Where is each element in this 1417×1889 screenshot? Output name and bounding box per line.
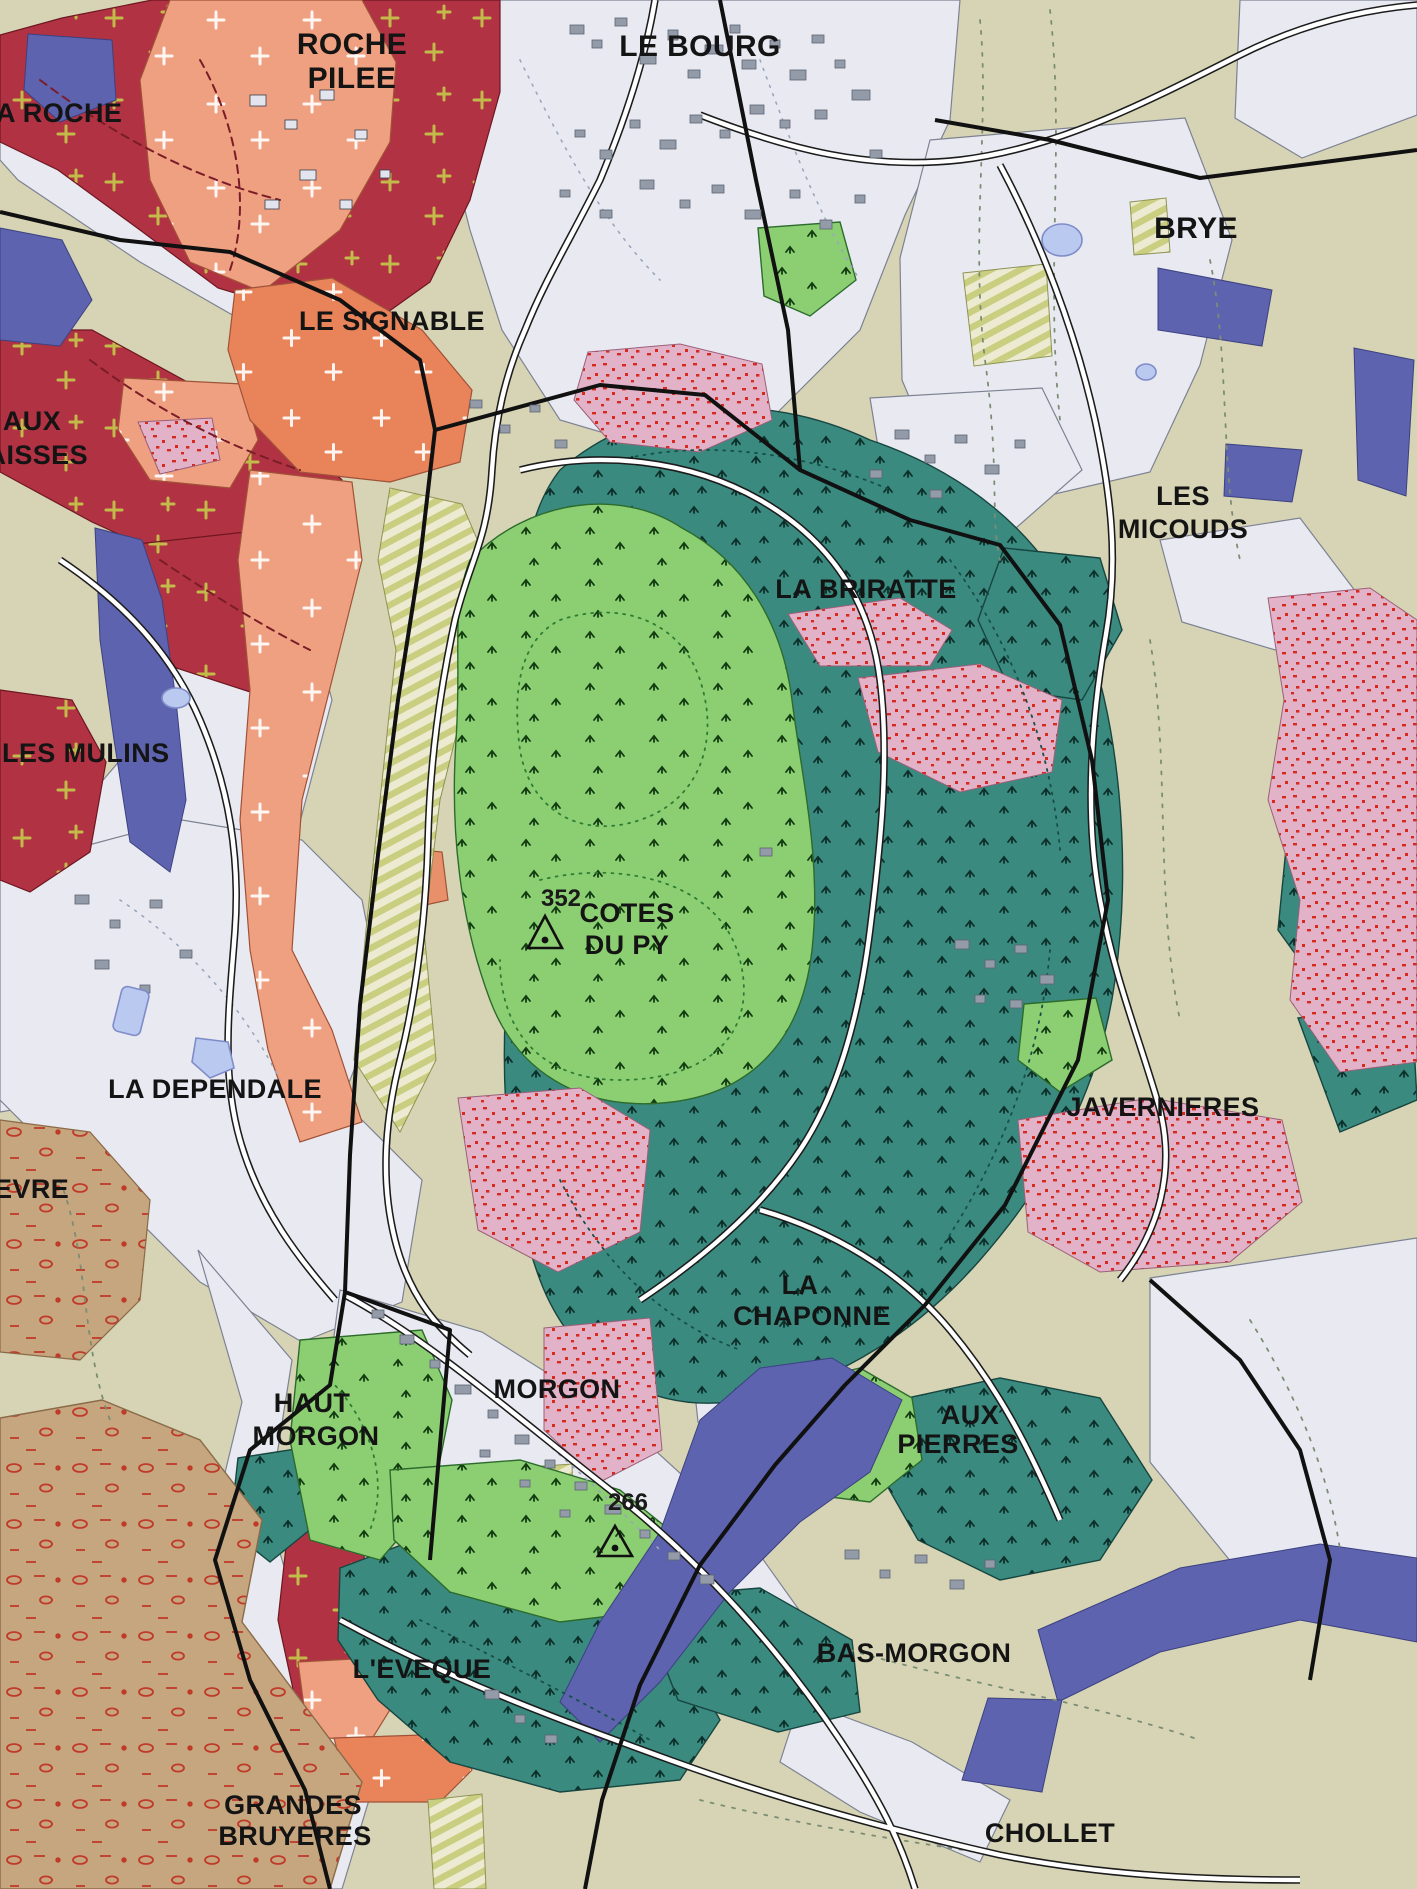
place-label-la-chaponne-2: CHAPONNE <box>733 1301 891 1331</box>
place-label-aux-baisses-2: BAISSES <box>0 440 88 470</box>
place-label-la-dependale: LA DEPENDALE <box>108 1074 322 1104</box>
pond-les-mulins <box>162 688 190 708</box>
place-label-aux-pierres-1: AUX <box>941 1400 999 1430</box>
elevation-dot-icon <box>612 1545 619 1552</box>
place-label-haut-morgon-2: MORGON <box>253 1421 380 1451</box>
elevation-value-352: 352 <box>541 885 581 912</box>
place-label-aux-baisses-1: AUX <box>3 406 61 436</box>
place-label-aux-pierres-2: PIERRES <box>897 1429 1018 1459</box>
place-label-javernieres: JAVERNIERES <box>1067 1092 1260 1122</box>
pond-brye <box>1042 224 1082 256</box>
pond-brye-small <box>1136 364 1156 380</box>
elevation-value-266: 266 <box>608 1489 648 1516</box>
place-label-grandes-bruyeres-2: BRUYERES <box>218 1821 371 1851</box>
place-label-grandes-bruyeres-1: GRANDES <box>224 1790 362 1820</box>
place-label-roche-pilee-2: PILEE <box>308 62 397 95</box>
place-label-morgon: MORGON <box>494 1374 621 1404</box>
place-label-la-roche: A ROCHE <box>0 98 122 128</box>
map-canvas: 352 266 A ROCHE ROCHE PILEE LE BOURG BRY… <box>0 0 1417 1889</box>
place-label-les-mulins: LES MULINS <box>2 738 170 768</box>
region-fills <box>0 0 1417 1889</box>
place-label-cotes-du-py-2: DU PY <box>585 930 670 960</box>
place-label-le-signable: LE SIGNABLE <box>299 306 485 336</box>
place-label-brye: BRYE <box>1154 212 1238 245</box>
place-label-l-eveque: L'EVEQUE <box>353 1654 492 1684</box>
place-label-bas-morgon: BAS-MORGON <box>817 1638 1012 1668</box>
place-label-les-micouds-2: MICOUDS <box>1118 514 1248 544</box>
geological-vineyard-map: 352 266 A ROCHE ROCHE PILEE LE BOURG BRY… <box>0 0 1417 1889</box>
elevation-dot-icon <box>542 937 549 944</box>
place-label-chollet: CHOLLET <box>985 1818 1115 1848</box>
place-label-le-bourg: LE BOURG <box>619 30 781 63</box>
place-label-la-chaponne-1: LA <box>782 1270 819 1300</box>
place-label-les-micouds-1: LES <box>1156 481 1210 511</box>
place-label-cotes-du-py-1: COTES <box>579 898 674 928</box>
place-label-roche-pilee-1: ROCHE <box>297 28 407 61</box>
place-label-haut-morgon-1: HAUT <box>274 1388 351 1418</box>
place-label-la-briratte: LA BRIRATTE <box>775 574 956 604</box>
place-label-evre-fragment: EVRE <box>0 1174 69 1204</box>
